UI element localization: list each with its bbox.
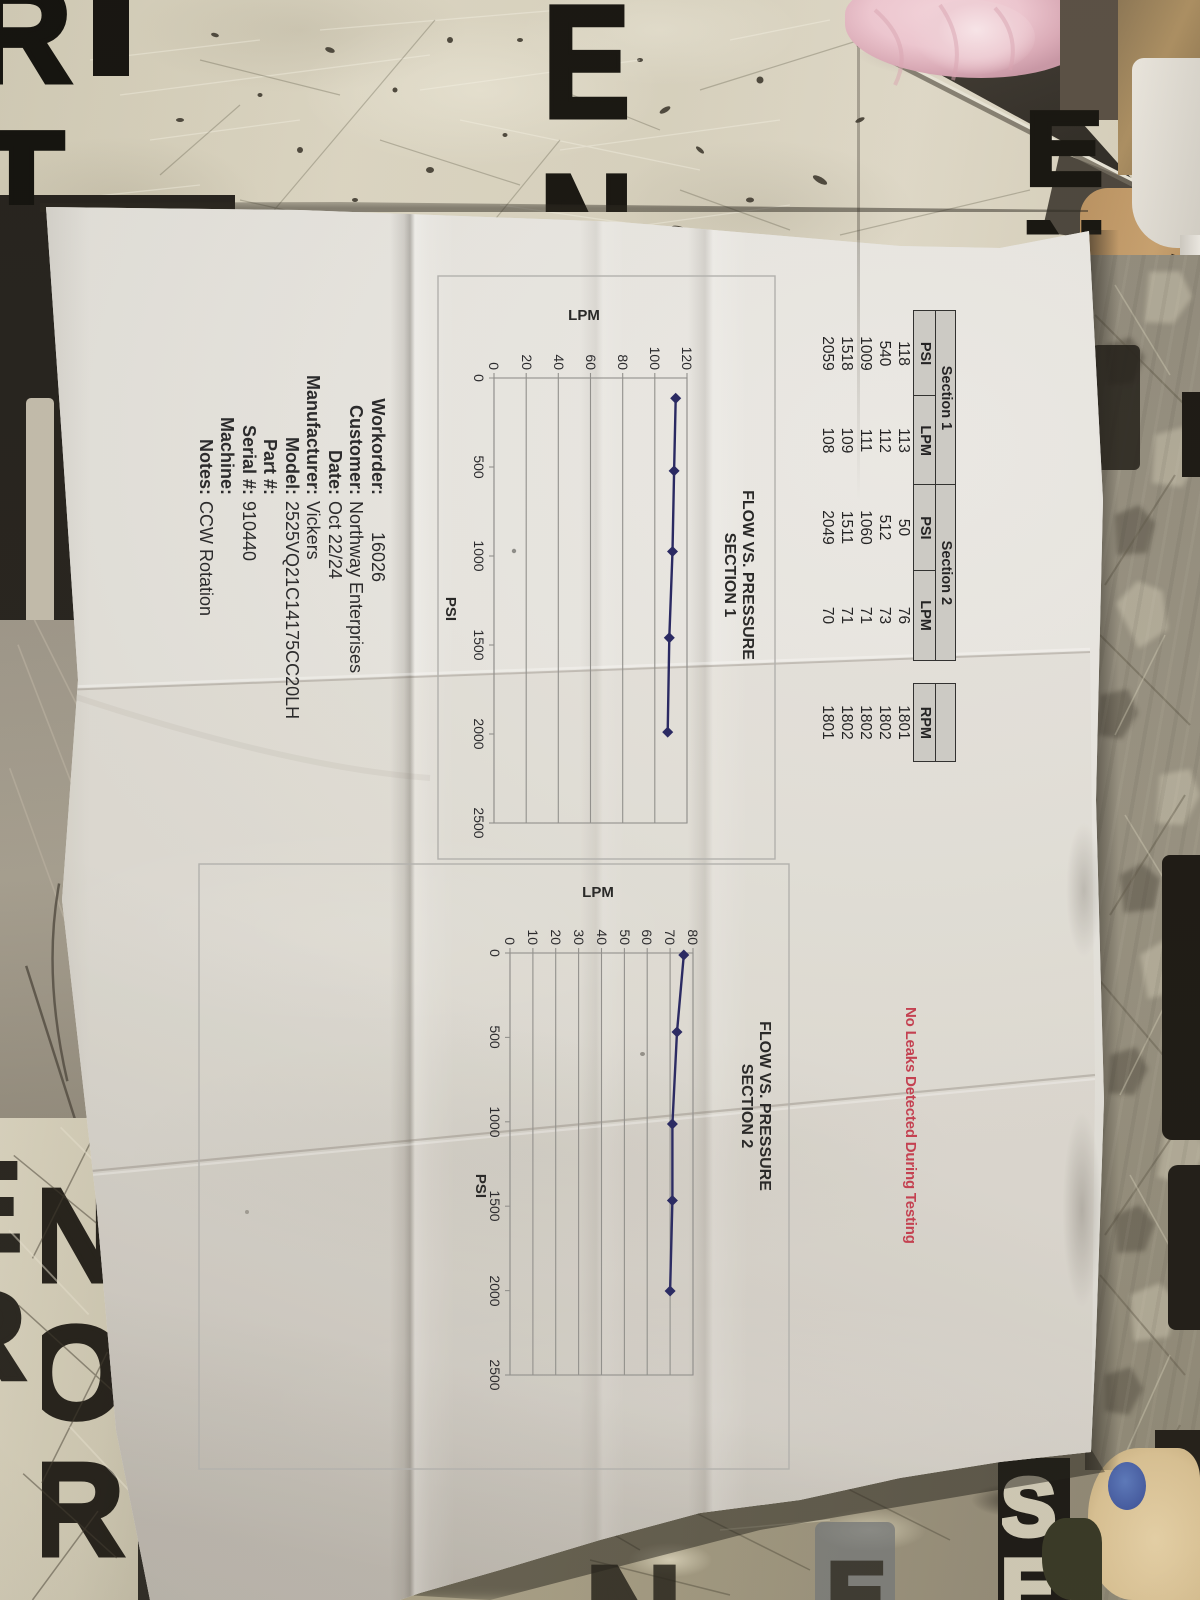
- svg-text:2000: 2000: [487, 1275, 503, 1306]
- svg-text:500: 500: [487, 1025, 503, 1049]
- svg-text:20: 20: [519, 354, 535, 370]
- svg-text:1500: 1500: [487, 1190, 503, 1221]
- svg-text:60: 60: [583, 354, 599, 370]
- svg-text:2500: 2500: [471, 807, 487, 838]
- svg-text:1000: 1000: [471, 540, 487, 571]
- svg-text:PSI: PSI: [472, 1174, 489, 1198]
- svg-text:70: 70: [662, 929, 678, 945]
- svg-text:30: 30: [571, 929, 587, 945]
- svg-text:50: 50: [617, 929, 633, 945]
- svg-text:80: 80: [615, 354, 631, 370]
- svg-text:100: 100: [647, 347, 663, 371]
- svg-text:0: 0: [471, 374, 487, 382]
- svg-text:1500: 1500: [471, 629, 487, 660]
- svg-text:LPM: LPM: [582, 884, 614, 901]
- svg-text:10: 10: [525, 929, 541, 945]
- svg-text:SECTION 1: SECTION 1: [721, 533, 738, 618]
- svg-text:20: 20: [548, 929, 564, 945]
- svg-text:LPM: LPM: [568, 307, 600, 324]
- svg-text:FLOW VS. PRESSURE: FLOW VS. PRESSURE: [739, 490, 756, 660]
- svg-text:PSI: PSI: [442, 597, 459, 621]
- svg-text:40: 40: [551, 354, 567, 370]
- svg-text:2500: 2500: [487, 1359, 503, 1390]
- svg-text:0: 0: [487, 949, 503, 957]
- svg-text:120: 120: [679, 347, 695, 371]
- svg-text:80: 80: [685, 929, 701, 945]
- svg-text:2000: 2000: [471, 718, 487, 749]
- svg-text:500: 500: [471, 455, 487, 479]
- svg-text:0: 0: [486, 362, 502, 370]
- svg-text:FLOW VS. PRESSURE: FLOW VS. PRESSURE: [756, 1021, 773, 1191]
- svg-text:60: 60: [639, 929, 655, 945]
- svg-text:SECTION 2: SECTION 2: [738, 1064, 755, 1149]
- svg-text:1000: 1000: [487, 1106, 503, 1137]
- svg-text:0: 0: [502, 937, 518, 945]
- svg-text:40: 40: [594, 929, 610, 945]
